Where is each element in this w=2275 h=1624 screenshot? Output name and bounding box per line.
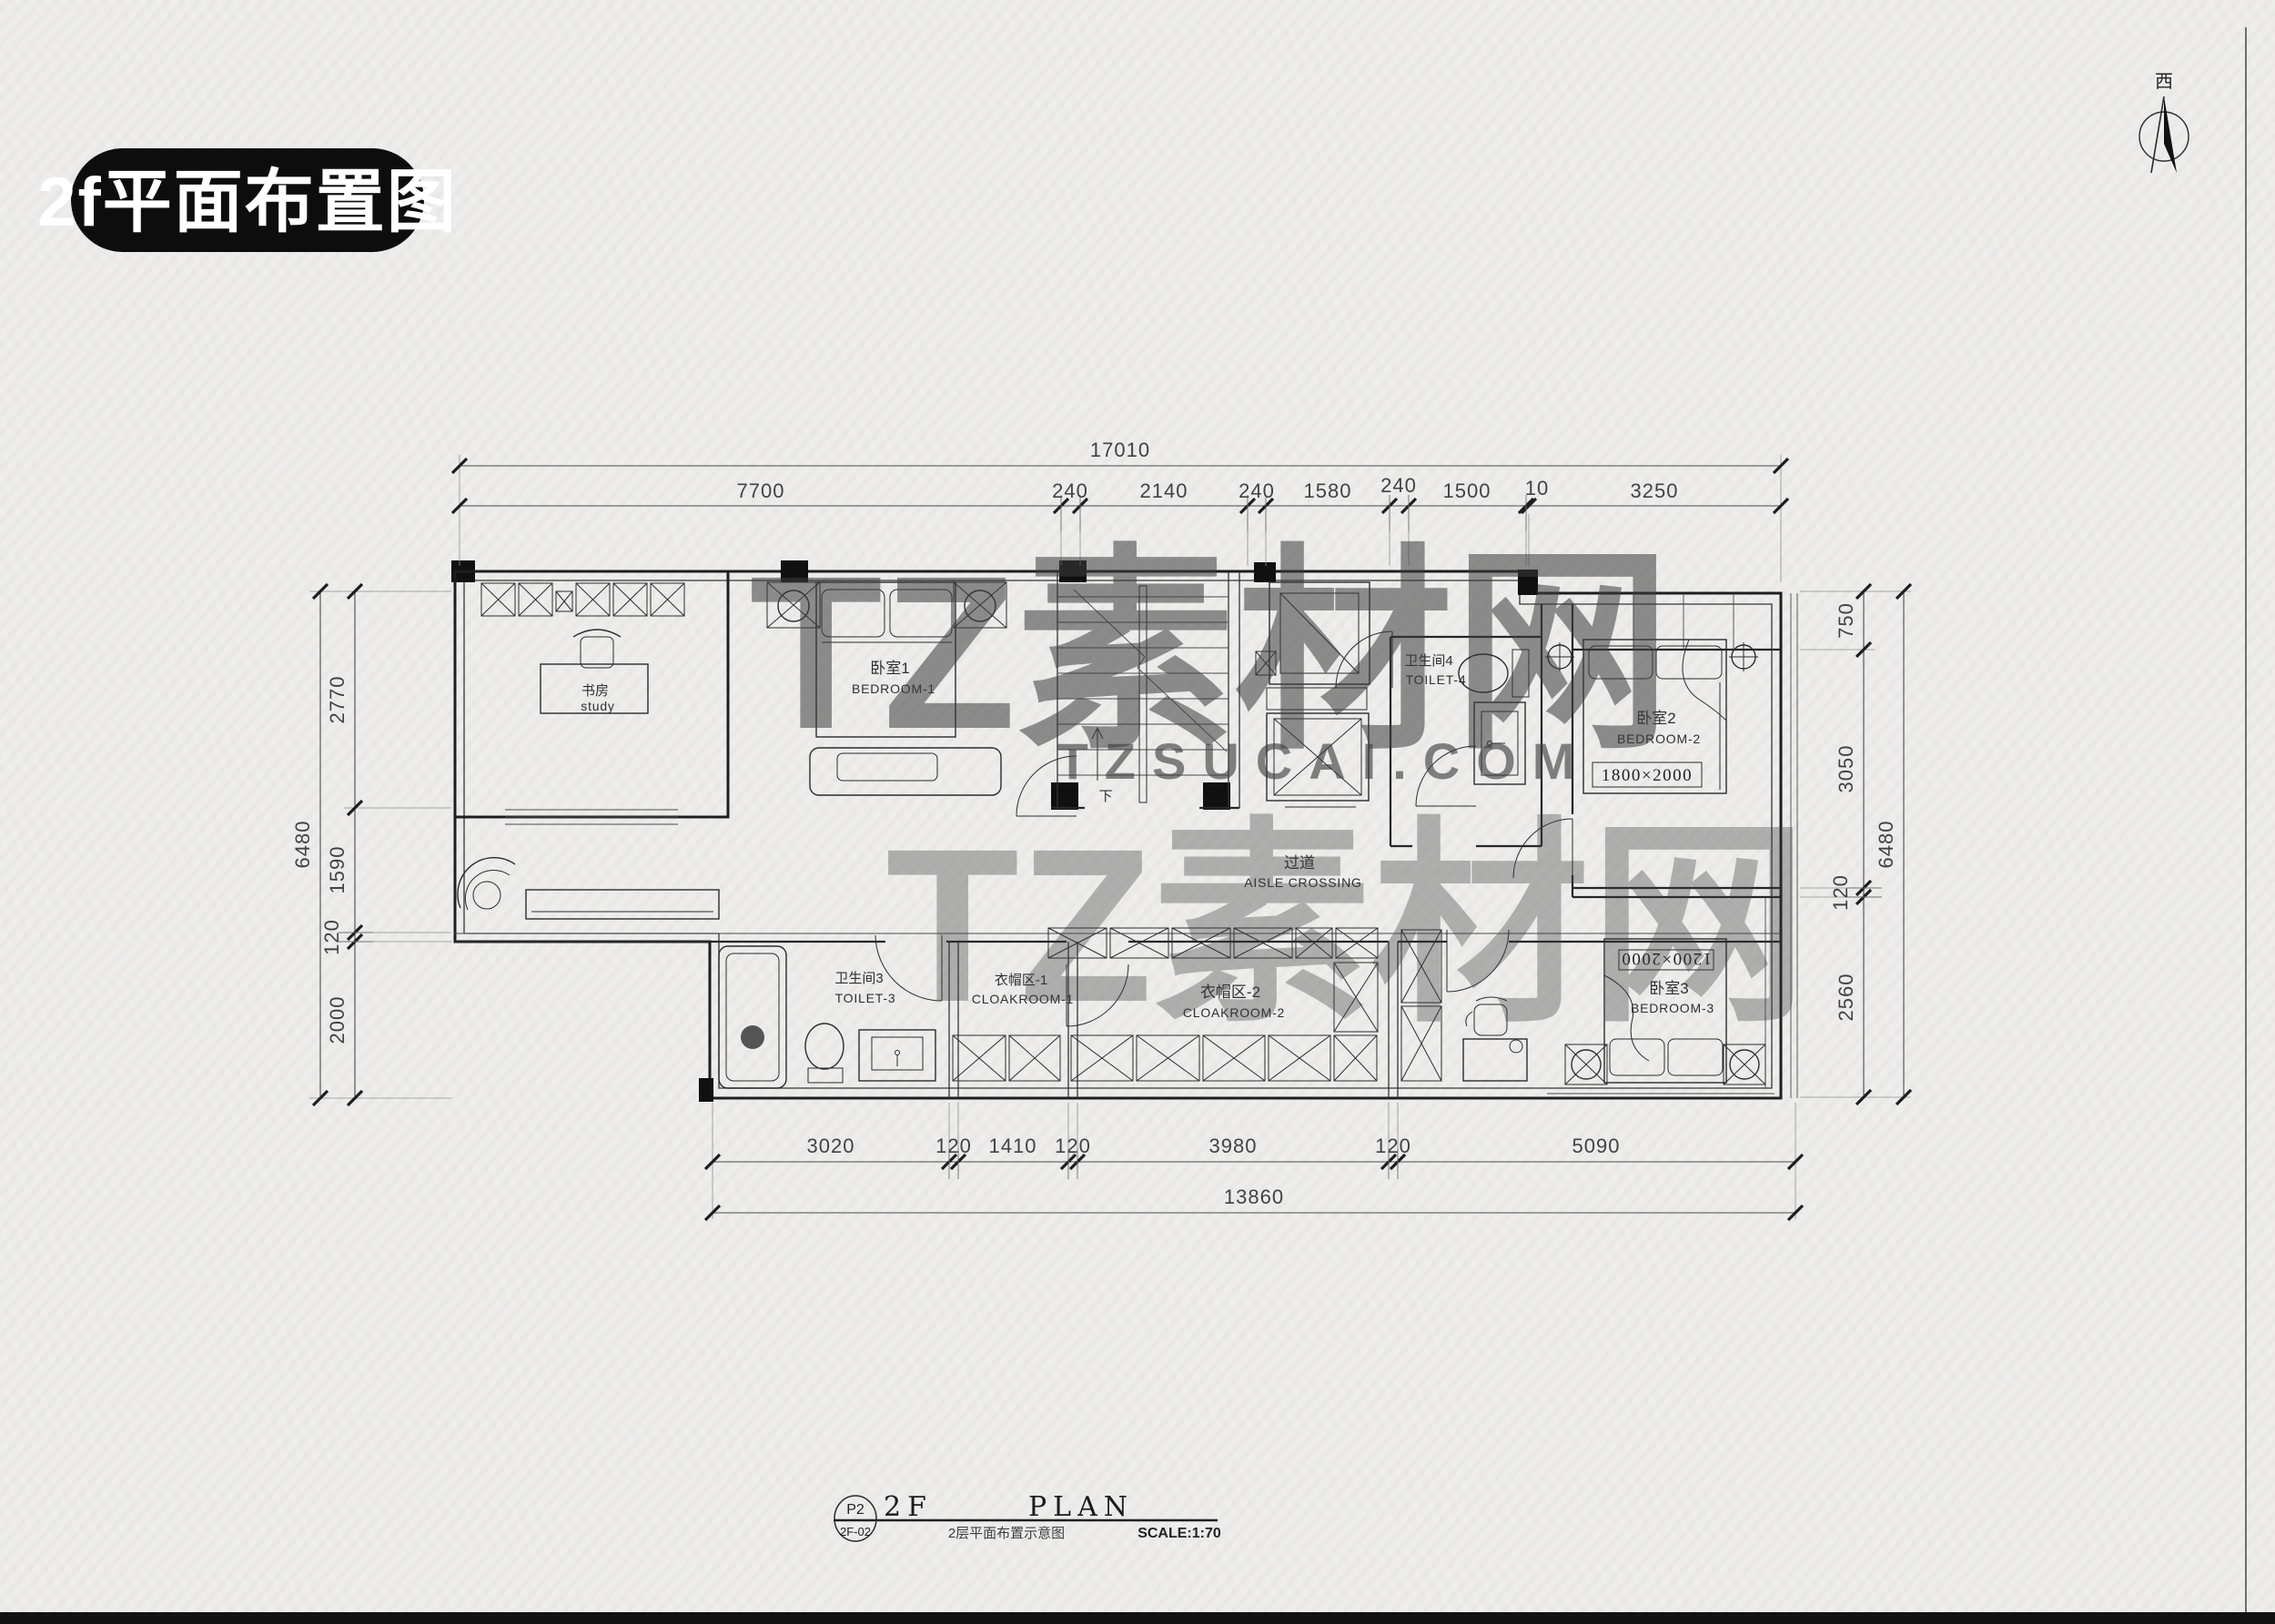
dim-bottom-seg-1: 120 (935, 1135, 972, 1157)
dimension-left: 6480 2770 1590 120 2000 (291, 584, 451, 1105)
page-title: 2f平面布置图 (37, 164, 458, 241)
dim-bottom-seg-0: 3020 (807, 1135, 855, 1157)
study-furniture: 书房 study (481, 583, 684, 713)
dim-bottom-total: 13860 (1224, 1185, 1284, 1208)
title-block-plan-word: PLAN (1028, 1491, 1134, 1523)
dim-top-seg-1: 240 (1052, 479, 1088, 502)
title-badge: 2f平面布置图 (37, 148, 458, 252)
floor-plan-svg: 下 (0, 0, 2275, 1624)
title-block-scale: SCALE:1:70 (1137, 1526, 1221, 1541)
dim-bottom-seg-6: 5090 (1572, 1135, 1621, 1157)
dim-top-seg-8: 3250 (1631, 479, 1679, 502)
toilet3-label-cn: 卫生间3 (834, 971, 883, 986)
dim-top-ticks (452, 495, 1788, 531)
dim-top-seg-5: 240 (1380, 474, 1417, 497)
study-label-en: study (581, 699, 614, 713)
sheet-number-bottom: 2F-02 (840, 1525, 871, 1538)
dim-left-total: 6480 (291, 821, 314, 869)
watermark-sub: TZSUCAI.COM (1057, 732, 1592, 790)
compass-west-label: 西 (2155, 72, 2173, 92)
dim-right-seg-0: 750 (1835, 602, 1857, 639)
page-bottom-edge (0, 1612, 2275, 1624)
dimension-right: 750 3050 120 2560 6480 (1800, 584, 1911, 1105)
dim-right-seg-1: 3050 (1835, 745, 1857, 793)
title-block-subtitle: 2层平面布置示意图 (948, 1525, 1065, 1541)
dim-right-seg-2: 120 (1829, 874, 1852, 911)
dim-bottom-seg-5: 120 (1375, 1135, 1411, 1157)
dim-top-total: 17010 (1090, 439, 1150, 461)
dim-left-seg-3: 2000 (326, 996, 349, 1044)
dim-top-seg-2: 2140 (1140, 479, 1188, 502)
watermark: TZ素材网 TZSUCAI.COM TZ素材网 (749, 530, 1807, 1047)
drawing-sheet: 下 (0, 0, 2275, 1624)
dim-top-seg-4: 1580 (1304, 479, 1352, 502)
stairs-down-label: 下 (1098, 789, 1112, 804)
dim-bottom-seg-3: 120 (1055, 1135, 1091, 1157)
study-label-cn: 书房 (581, 683, 609, 699)
dim-top-seg-3: 240 (1239, 479, 1275, 502)
dimension-bottom: 3020 120 1410 120 3980 120 5090 13860 (705, 1103, 1803, 1220)
dim-bottom-seg-4: 3980 (1209, 1135, 1258, 1157)
dim-right-seg-3: 2560 (1835, 973, 1857, 1022)
title-block: P2 2F-02 2F PLAN 2层平面布置示意图 SCALE:1:70 (834, 1491, 1221, 1541)
dim-right-total: 6480 (1875, 821, 1897, 869)
dim-left-seg-1: 1590 (326, 846, 349, 894)
study-cabinets (481, 583, 684, 616)
dim-left-seg-0: 2770 (326, 676, 349, 724)
sheet-number-top: P2 (846, 1502, 864, 1518)
compass: 西 (2139, 72, 2189, 173)
watermark-row2: TZ素材网 (885, 803, 1807, 1047)
title-block-floor: 2F (884, 1491, 933, 1523)
dim-top-seg-0: 7700 (737, 479, 785, 502)
dim-top-seg-6: 1500 (1443, 479, 1491, 502)
dim-bottom-seg-2: 1410 (989, 1135, 1037, 1157)
dim-left-seg-2: 120 (320, 919, 343, 955)
dim-top-seg-7: 10 (1525, 477, 1549, 499)
